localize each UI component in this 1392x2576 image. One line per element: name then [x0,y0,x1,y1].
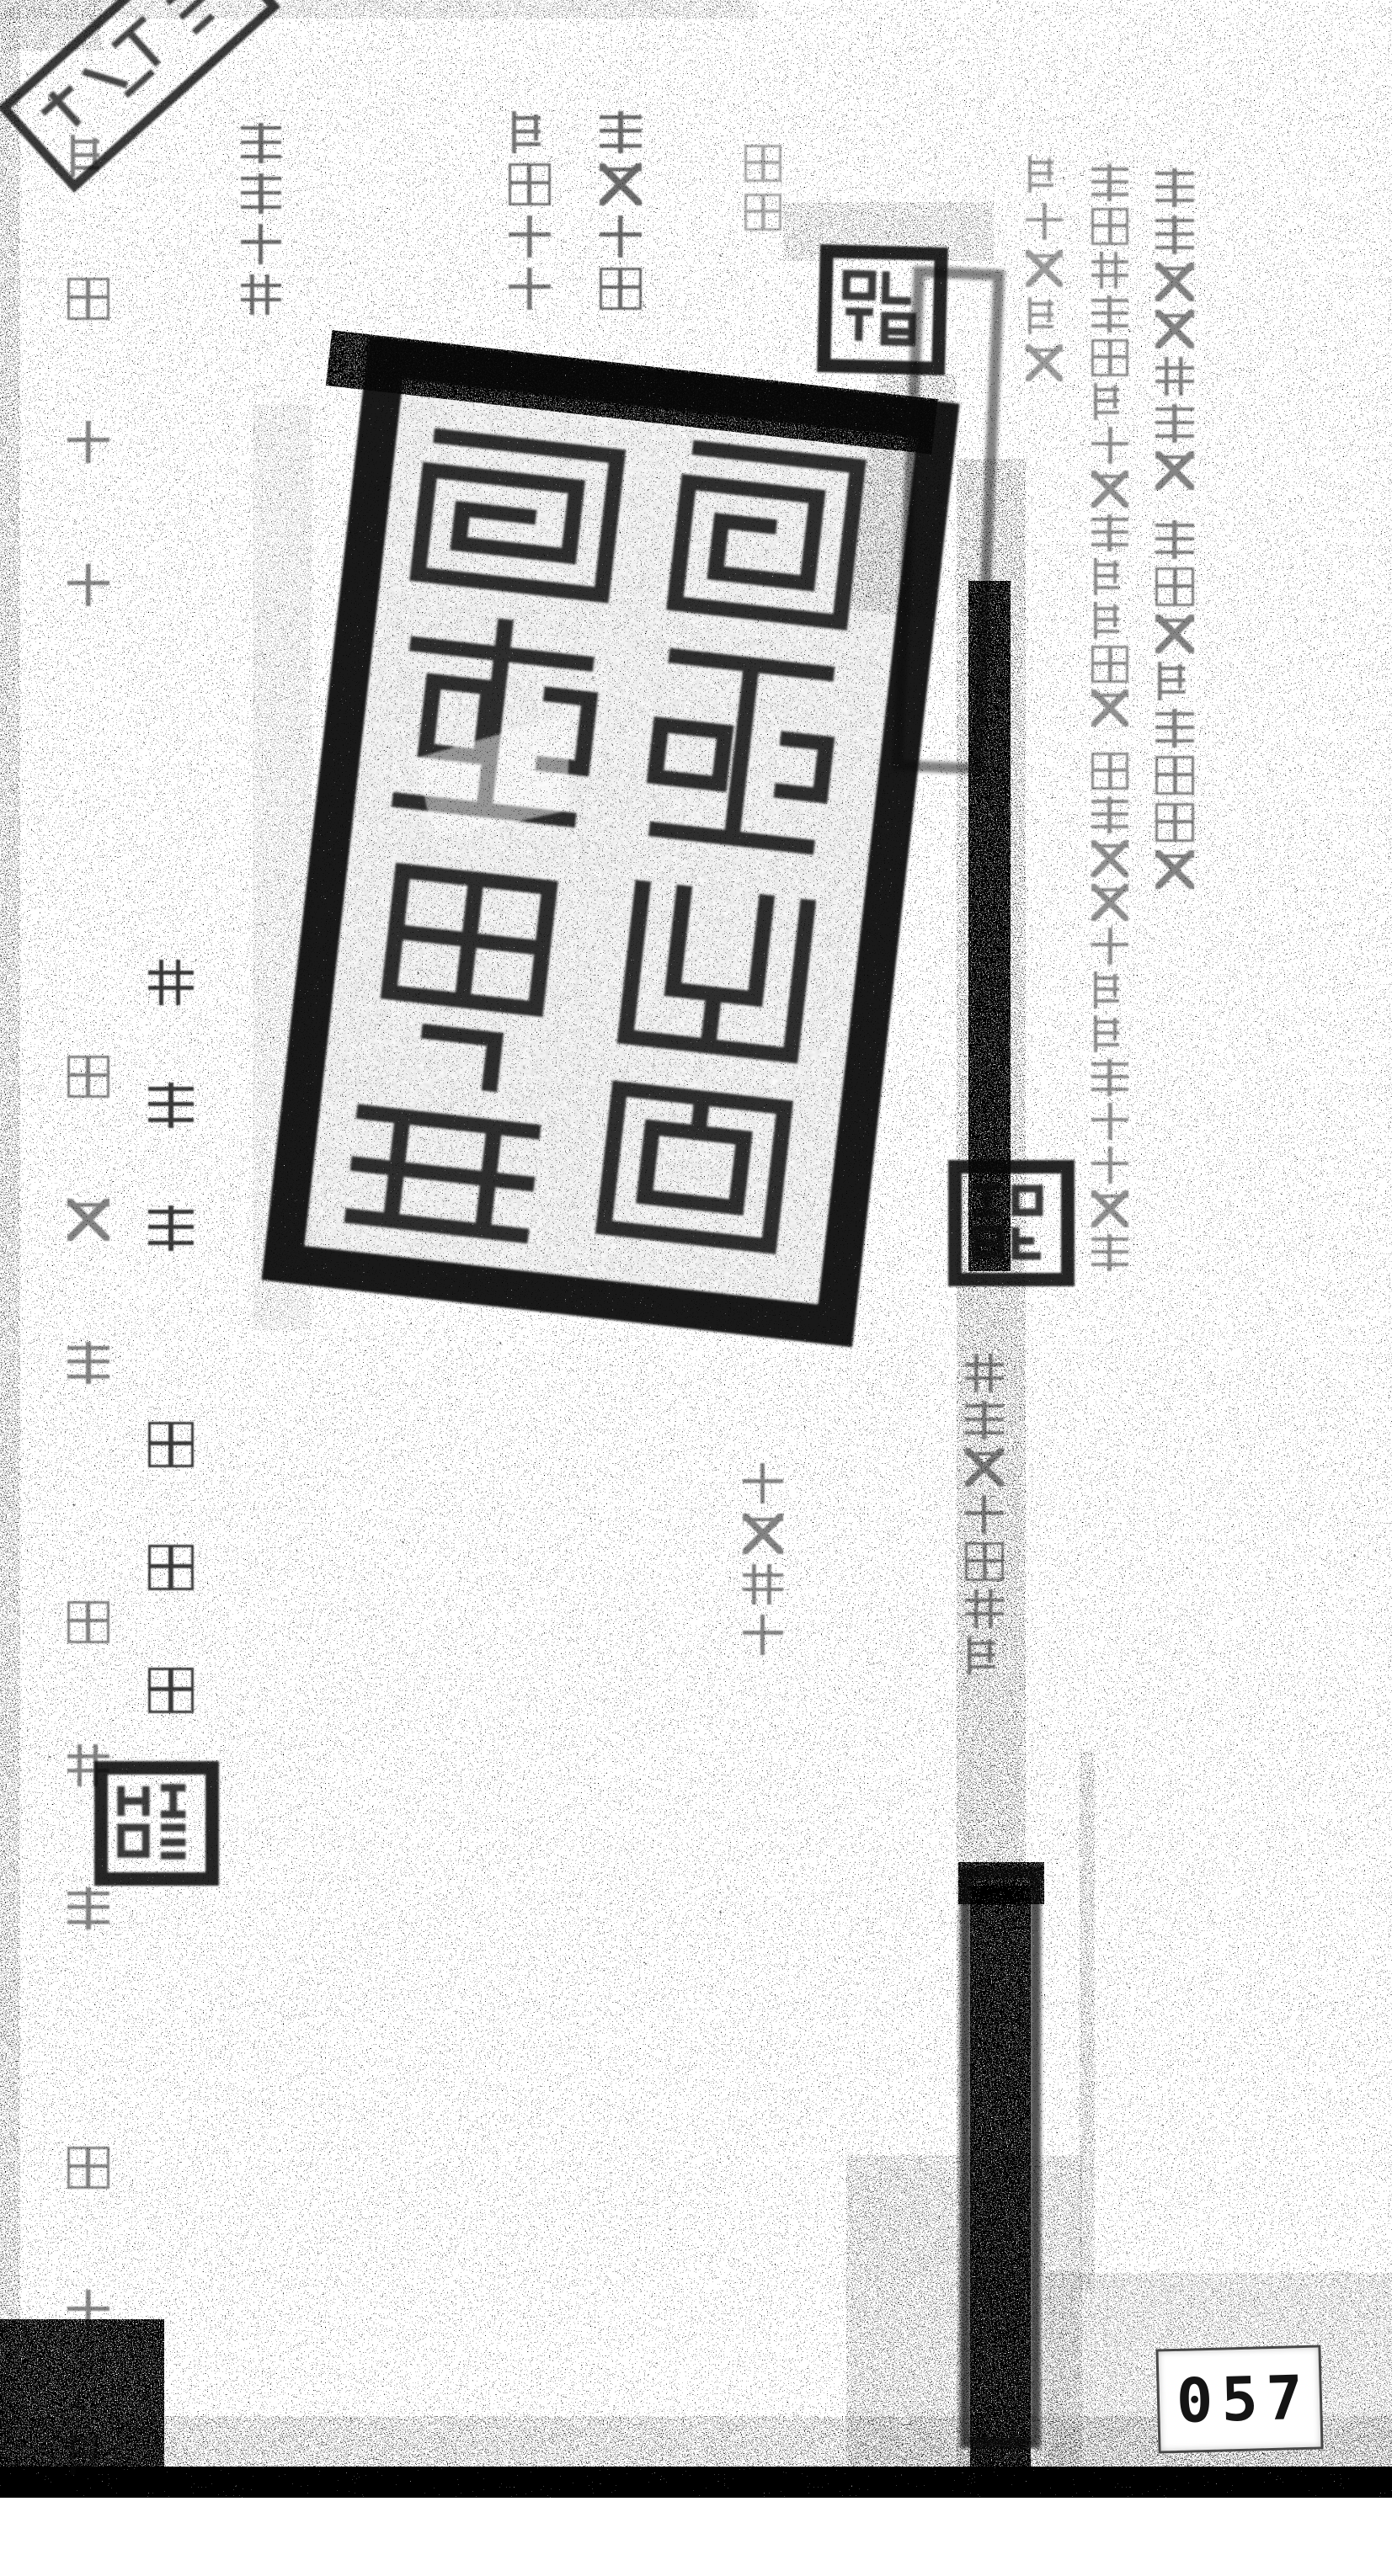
glyph [1155,357,1194,396]
glyph [1026,250,1063,287]
text-column-col-clerk [148,960,194,1791]
glyph [1155,451,1194,490]
glyph [965,1448,1004,1487]
glyph [509,216,551,258]
column-gap [85,1485,92,1500]
text-column-col-benjian [241,123,281,325]
glyph [1091,796,1128,833]
seal-script-glyphs [304,380,916,1305]
small-square-seal-middle [948,1160,1075,1286]
glyph [148,1668,194,1713]
glyph [509,111,551,153]
glyph [148,1422,194,1467]
glyph [509,163,551,205]
glyph [148,1545,194,1590]
glyph [67,135,109,177]
glyph [965,1354,1004,1392]
glyph [1091,1190,1128,1227]
column-gap [168,1328,174,1344]
glyph [1026,344,1063,381]
glyph [1091,689,1128,726]
glyph [1091,1234,1128,1271]
glyph [1091,1103,1128,1140]
glyph [148,1083,194,1128]
glyph [1091,971,1128,1009]
glyph [965,1589,1004,1628]
column-gap [85,939,92,955]
page-number-label: 057 [1155,2344,1323,2453]
glyph [1155,404,1194,443]
text-column-col-mid-top-illegible [744,145,781,242]
glyph [67,1887,109,1929]
glyph [1091,1015,1128,1052]
glyph [965,1637,1004,1675]
glyph [509,268,551,310]
glyph [67,1342,109,1384]
page-number-text: 057 [1167,2362,1312,2436]
glyph [1091,427,1128,464]
glyph [743,1615,783,1655]
scanned-document-page: 057 [0,0,1392,2498]
glyph [743,1514,783,1554]
glyph [67,564,109,606]
glyph [1155,520,1194,559]
glyph [1026,297,1063,334]
glyph [67,1056,109,1098]
glyph [1091,1059,1128,1096]
glyph [1155,567,1194,606]
glyph [1155,850,1194,889]
glyph [965,1542,1004,1581]
glyph [965,1495,1004,1534]
glyph [965,1401,1004,1440]
glyph [743,1463,783,1504]
text-column-col-benbu [600,111,642,320]
glyph [241,274,281,315]
column-gap [85,823,92,838]
large-official-seal [261,337,959,1348]
text-column-col-date [67,135,109,2576]
glyph [1091,295,1128,333]
seal-glyphs [108,1775,205,1872]
column-gap [85,2030,92,2046]
glyph [744,194,781,231]
glyph [743,1564,783,1605]
glyph [1091,840,1128,877]
glyph [1026,156,1063,193]
small-square-seal-bottom [94,1761,219,1886]
glyph [600,111,642,153]
glyph [1091,753,1128,790]
glyph [1091,339,1128,376]
glyph [67,2290,109,2332]
glyph [1091,928,1128,965]
glyph [67,421,109,463]
glyph [600,163,642,205]
glyph [744,145,781,182]
glyph [1155,263,1194,301]
glyph [1026,203,1063,240]
glyph [1091,252,1128,289]
glyph [1155,756,1194,795]
glyph [1091,602,1128,639]
glyph [67,2147,109,2189]
glyph [67,1199,109,1241]
text-column-col-mid-low [743,1463,783,1665]
glyph [241,173,281,214]
column-gap [85,707,92,722]
glyph [1155,615,1194,653]
glyph [1091,471,1128,508]
glyph [1155,662,1194,700]
glyph [1091,884,1128,921]
glyph [1091,164,1128,201]
column-gap [1107,733,1113,746]
glyph [1091,1147,1128,1184]
glyph [1155,709,1194,748]
glyph [241,224,281,264]
text-column-col-right-1 [1155,168,1194,897]
glyph [67,1601,109,1643]
glyph [1091,646,1128,683]
text-column-col-zhonghua-1 [509,111,551,320]
glyph [67,278,109,320]
glyph [67,2433,109,2475]
glyph [1091,514,1128,551]
glyph [600,268,642,310]
glyph [1155,310,1194,349]
glyph [1091,558,1128,595]
glyph [1091,208,1128,245]
glyph [1091,383,1128,420]
seal-glyphs [962,1174,1061,1273]
glyph [241,123,281,163]
column-gap [1171,498,1178,512]
text-column-col-right-2 [1091,164,1128,1278]
glyph [600,216,642,258]
glyph [1155,803,1194,842]
text-column-col-right-3 [1026,156,1063,391]
glyph [1155,216,1194,254]
glyph [148,1206,194,1251]
glyph [1155,168,1194,207]
text-column-col-article [965,1354,1004,1684]
stamp-outline-bottom [960,1867,1041,2448]
glyph [148,960,194,1005]
